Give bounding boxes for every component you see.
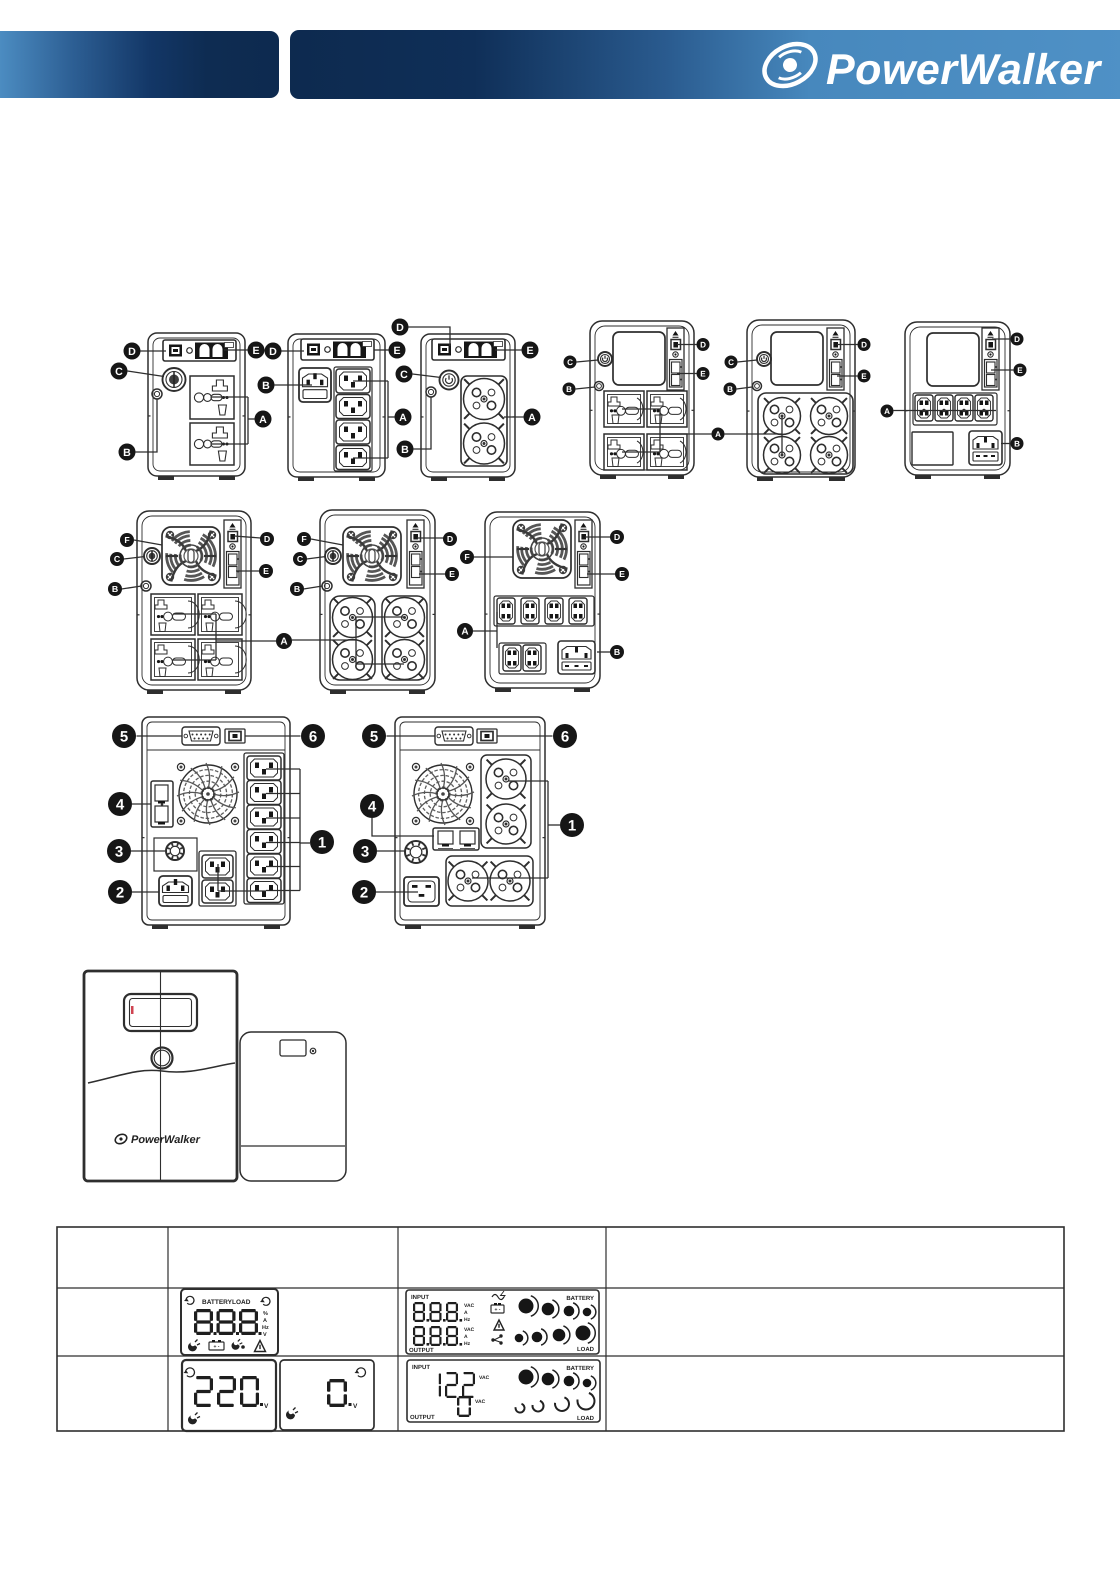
svg-text:OUTPUT: OUTPUT — [409, 1347, 434, 1354]
svg-text:+ -: + - — [495, 1307, 501, 1313]
svg-text:E: E — [252, 345, 259, 357]
svg-text:E: E — [449, 569, 455, 579]
svg-text:Hz: Hz — [464, 1341, 471, 1347]
svg-text:D: D — [264, 534, 270, 544]
svg-text:D: D — [128, 346, 136, 358]
svg-text:%: % — [263, 1311, 268, 1317]
svg-text:3: 3 — [115, 843, 123, 860]
svg-text:Hz: Hz — [464, 1317, 471, 1323]
svg-text:B: B — [262, 380, 270, 392]
svg-text:C: C — [400, 369, 408, 381]
svg-text:A: A — [715, 430, 721, 439]
svg-text:A: A — [461, 627, 468, 638]
svg-text:B: B — [112, 584, 118, 594]
svg-text:D: D — [700, 340, 706, 349]
svg-text:2: 2 — [116, 884, 124, 901]
svg-text:A: A — [464, 1310, 468, 1316]
svg-text:D: D — [861, 340, 867, 349]
svg-text:D: D — [614, 532, 620, 542]
svg-text:BATTERY: BATTERY — [566, 1295, 594, 1302]
svg-text:F: F — [124, 535, 130, 545]
svg-text:B: B — [614, 647, 620, 657]
svg-text:1: 1 — [568, 817, 576, 834]
svg-text:B: B — [401, 444, 409, 456]
svg-text:V: V — [264, 1403, 269, 1410]
svg-text:D: D — [269, 346, 277, 358]
svg-text:B: B — [727, 385, 733, 394]
svg-text:INPUT: INPUT — [411, 1294, 429, 1301]
svg-text:D: D — [396, 322, 404, 334]
svg-text:E: E — [861, 372, 867, 381]
svg-text:D: D — [1014, 335, 1020, 344]
svg-text:C: C — [297, 554, 304, 564]
svg-text:E: E — [1017, 366, 1023, 375]
svg-text:F: F — [301, 534, 307, 544]
svg-text:2: 2 — [360, 884, 368, 901]
svg-text:C: C — [728, 358, 734, 367]
svg-text:A: A — [280, 637, 287, 648]
svg-text:B: B — [294, 584, 300, 594]
svg-text:PowerWalker: PowerWalker — [131, 1134, 201, 1146]
svg-text:VAC: VAC — [464, 1327, 475, 1333]
svg-text:E: E — [393, 345, 400, 357]
svg-text:A: A — [263, 1318, 267, 1324]
svg-text:E: E — [619, 569, 625, 579]
svg-text:E: E — [700, 369, 706, 378]
svg-text:Hz: Hz — [262, 1325, 269, 1331]
svg-text:F: F — [464, 552, 470, 562]
svg-text:LOAD: LOAD — [577, 1415, 595, 1422]
svg-text:D: D — [447, 534, 453, 544]
svg-text:V: V — [263, 1332, 267, 1338]
svg-text:OUTPUT: OUTPUT — [410, 1414, 435, 1421]
svg-text:BATTERYLOAD: BATTERYLOAD — [202, 1299, 251, 1306]
svg-text:4: 4 — [368, 798, 377, 815]
svg-text:E: E — [526, 345, 533, 357]
svg-text:A: A — [528, 412, 536, 424]
svg-text:C: C — [115, 366, 123, 378]
svg-text:VAC: VAC — [479, 1375, 490, 1381]
svg-text:VAC: VAC — [475, 1399, 486, 1405]
svg-text:INPUT: INPUT — [412, 1364, 430, 1371]
svg-text:5: 5 — [370, 728, 378, 745]
svg-text:5: 5 — [120, 728, 128, 745]
svg-text:A: A — [259, 414, 267, 426]
svg-text:+ -: + - — [214, 1344, 220, 1350]
svg-text:A: A — [464, 1334, 468, 1340]
svg-text:C: C — [567, 358, 573, 367]
svg-text:E: E — [263, 566, 269, 576]
svg-text:3: 3 — [361, 843, 369, 860]
svg-text:A: A — [884, 407, 890, 416]
svg-text:C: C — [114, 554, 121, 564]
svg-text:6: 6 — [561, 728, 569, 745]
svg-text:B: B — [123, 447, 131, 459]
svg-text:A: A — [399, 412, 407, 424]
svg-text:6: 6 — [309, 728, 317, 745]
svg-text:V: V — [353, 1403, 358, 1410]
svg-text:1: 1 — [318, 834, 326, 851]
svg-text:4: 4 — [116, 796, 125, 813]
svg-text:VAC: VAC — [464, 1303, 475, 1309]
svg-text:LOAD: LOAD — [577, 1346, 595, 1353]
svg-text:B: B — [566, 385, 572, 394]
svg-text:B: B — [1014, 439, 1020, 448]
svg-text:BATTERY: BATTERY — [566, 1365, 594, 1372]
